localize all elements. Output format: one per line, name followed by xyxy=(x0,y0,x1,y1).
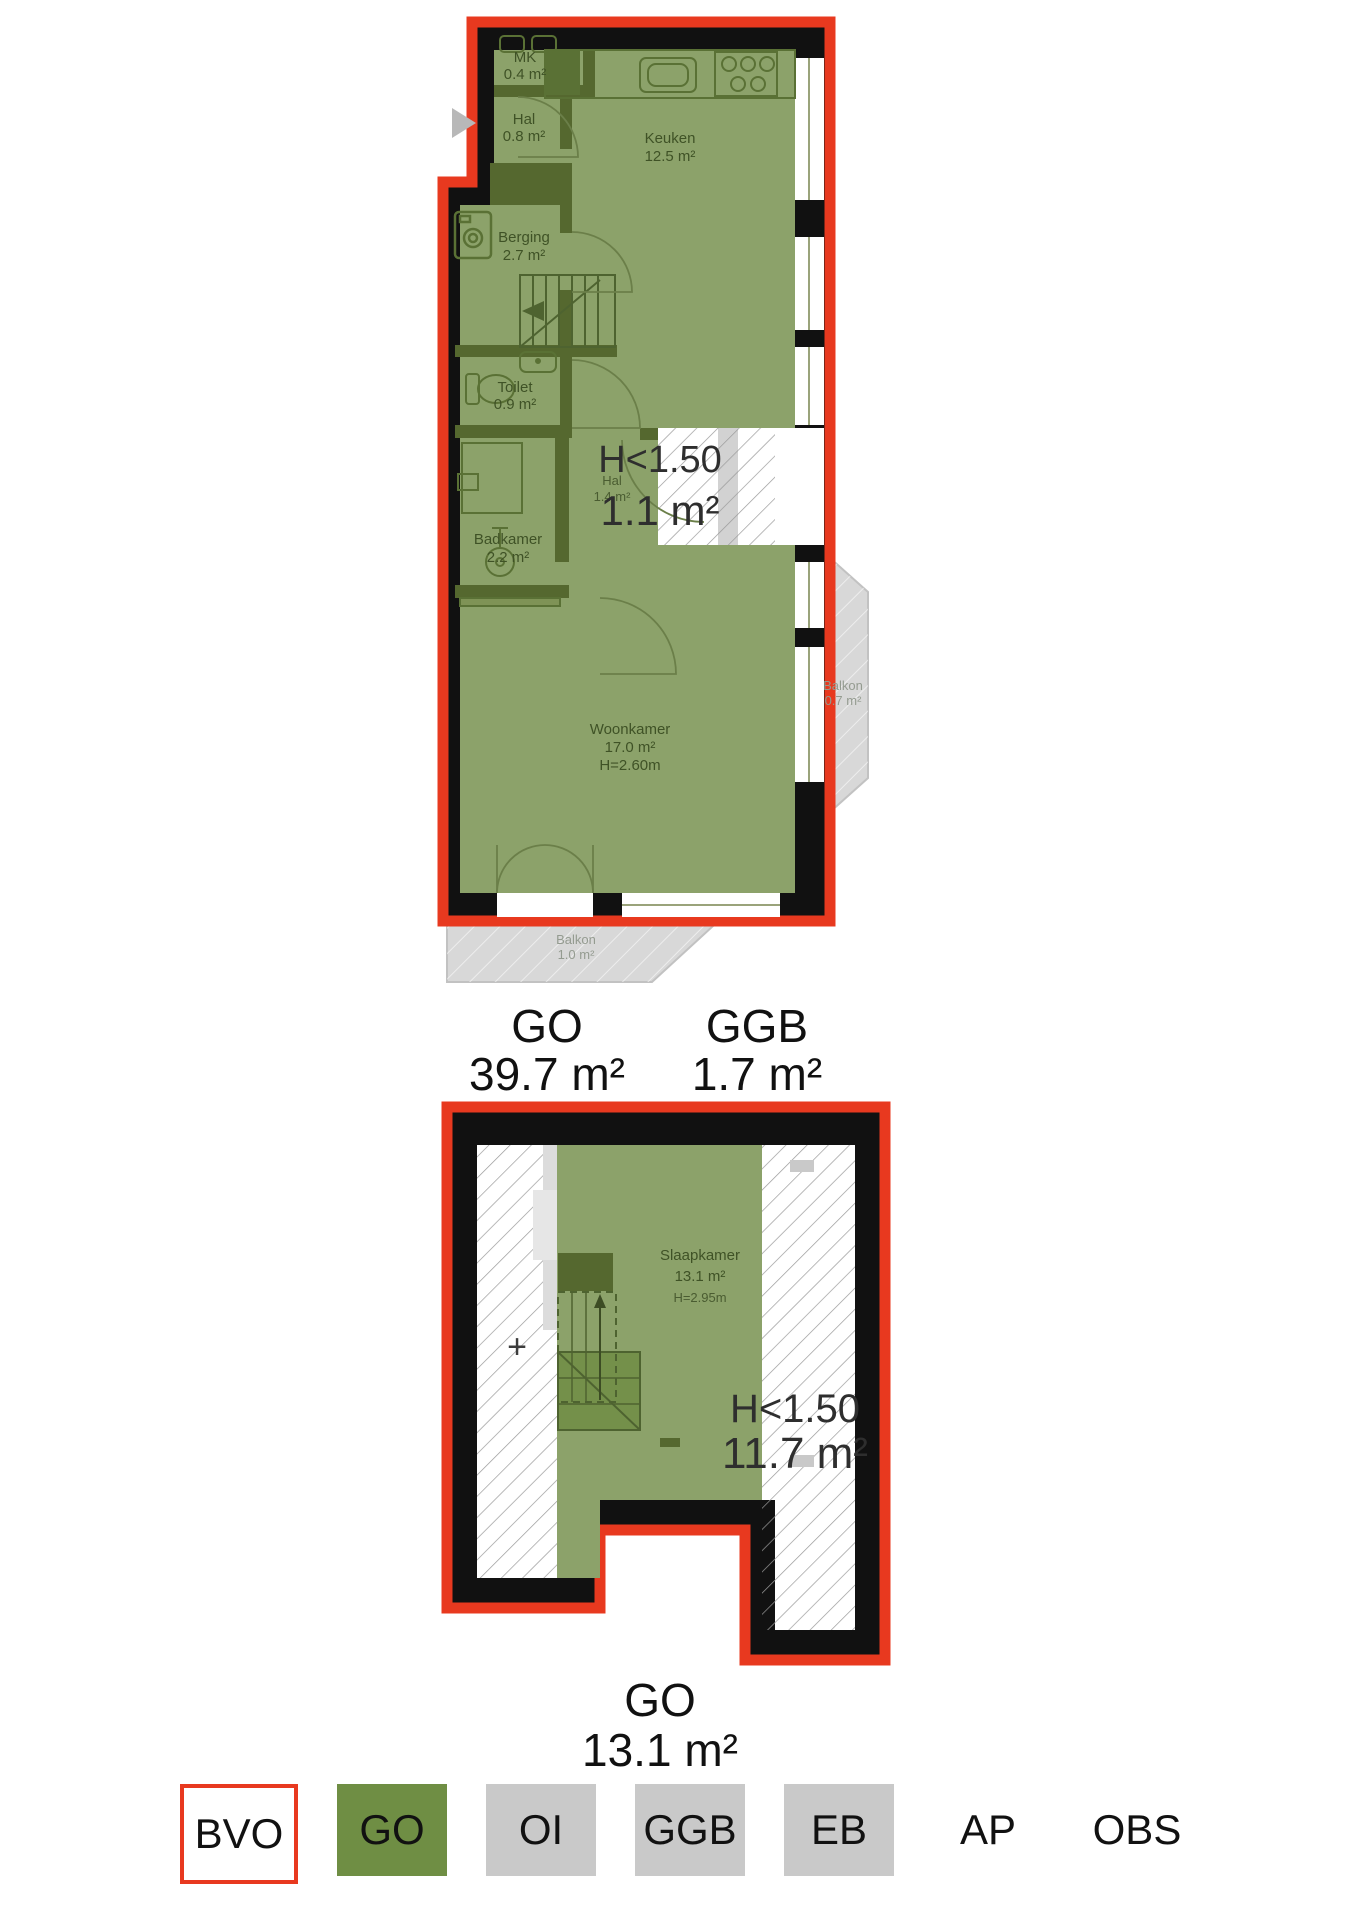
room-area-keuken: 12.5 m² xyxy=(645,148,696,165)
room-area-balkon-side: 0.7 m² xyxy=(825,693,863,708)
room-label-keuken: Keuken xyxy=(645,130,696,147)
floor1-go-label: GO xyxy=(511,1000,583,1052)
room-area-hal: 0.8 m² xyxy=(503,128,546,145)
legend-item-bvo: BVO xyxy=(180,1784,298,1884)
legend-item-eb: EB xyxy=(784,1784,894,1876)
floor1-ggb-area: 1.7 m² xyxy=(692,1048,822,1100)
legend-item-ap: AP xyxy=(933,1784,1043,1876)
legend-item-oi: OI xyxy=(486,1784,596,1876)
measurement-report-page: MK 0.4 m² Hal 0.8 m² Keuken 12.5 m² Berg… xyxy=(0,0,1358,1920)
floor1-ggb-label: GGB xyxy=(706,1000,808,1052)
floorplan-drawing: MK 0.4 m² Hal 0.8 m² Keuken 12.5 m² Berg… xyxy=(0,0,1358,1920)
room-label-mk: MK xyxy=(514,49,537,66)
room-label-slaapkamer: Slaapkamer xyxy=(660,1247,740,1264)
legend: BVO GO OI GGB EB AP OBS xyxy=(180,1784,1192,1884)
floor1-totals: GO 39.7 m² GGB 1.7 m² xyxy=(469,1000,822,1100)
floor1-plan: MK 0.4 m² Hal 0.8 m² Keuken 12.5 m² Berg… xyxy=(443,22,868,1100)
floor2-go-label: GO xyxy=(624,1674,696,1726)
floor1-go-area: 39.7 m² xyxy=(469,1048,625,1100)
room-height-woonkamer: H=2.60m xyxy=(599,757,660,774)
floor2-hlt150-area: 11.7 m² xyxy=(722,1429,868,1478)
legend-item-go: GO xyxy=(337,1784,447,1876)
floor2-go-area: 13.1 m² xyxy=(582,1724,738,1776)
floor2-low-height-label: H<1.50 11.7 m² xyxy=(722,1387,868,1478)
floor1-hlt150-area: 1.1 m² xyxy=(600,487,719,534)
room-label-toilet: Toilet xyxy=(497,379,533,396)
room-label-berging: Berging xyxy=(498,229,550,246)
room-label-hal: Hal xyxy=(513,111,536,128)
room-area-toilet: 0.9 m² xyxy=(494,396,537,413)
legend-item-obs: OBS xyxy=(1082,1784,1192,1876)
floor2-hlt150-label: H<1.50 xyxy=(730,1387,860,1431)
room-area-badkamer: 2.2 m² xyxy=(487,549,530,566)
floor2-totals: GO 13.1 m² xyxy=(582,1674,738,1776)
room-height-slaapkamer: H=2.95m xyxy=(673,1290,726,1305)
floor1-hlt150-label: H<1.50 xyxy=(598,439,722,481)
room-label-balkon-bottom: Balkon xyxy=(556,932,596,947)
floor2-plan: + Slaapkamer 13.1 m² H=2.95m H<1.50 11.7… xyxy=(447,1107,885,1776)
room-label-balkon-side: Balkon xyxy=(823,678,863,693)
room-area-slaapkamer: 13.1 m² xyxy=(675,1268,726,1285)
room-label-badkamer: Badkamer xyxy=(474,531,542,548)
legend-item-ggb: GGB xyxy=(635,1784,745,1876)
room-area-berging: 2.7 m² xyxy=(503,247,546,264)
floor2-plus-marker: + xyxy=(507,1328,527,1366)
room-area-balkon-bottom: 1.0 m² xyxy=(558,947,596,962)
floor1-low-height-label: H<1.50 1.1 m² xyxy=(598,439,722,534)
room-area-mk: 0.4 m² xyxy=(504,66,547,83)
room-area-woonkamer: 17.0 m² xyxy=(605,739,656,756)
room-label-woonkamer: Woonkamer xyxy=(590,721,671,738)
